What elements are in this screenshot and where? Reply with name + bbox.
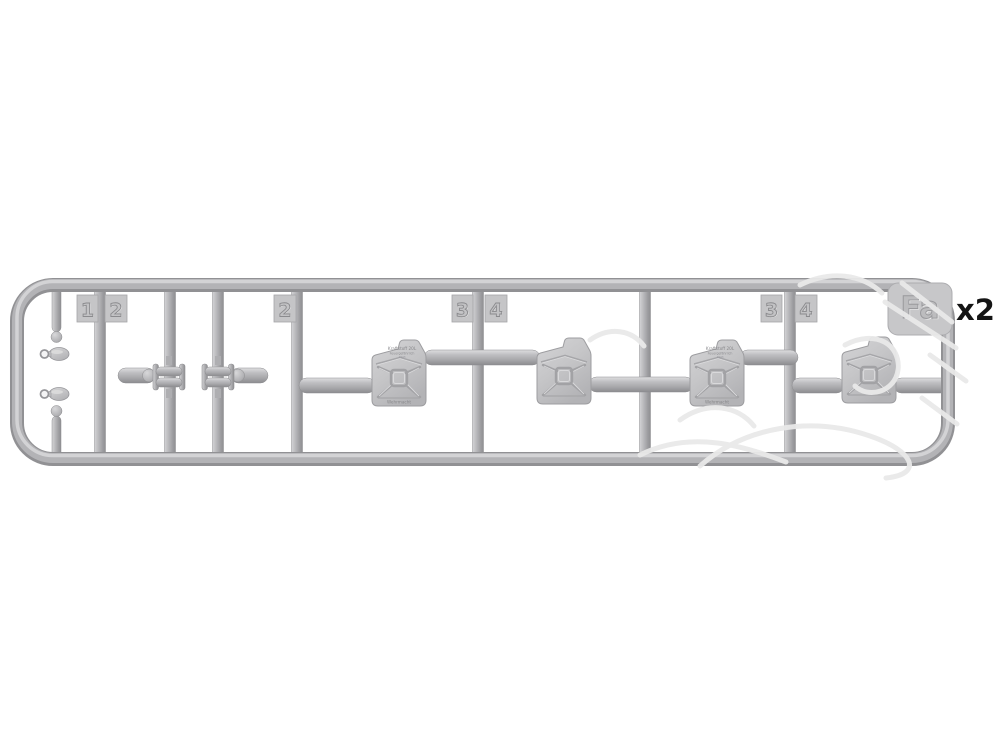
tag-label: 4 xyxy=(489,300,502,322)
can-emboss-line3: 1943 xyxy=(398,355,405,359)
part-tags: 1 1 2 2 2 2 3 3 4 4 3 3 4 xyxy=(77,295,817,322)
tag-label: 2 xyxy=(109,300,122,322)
runner-capsule xyxy=(424,350,540,365)
can-emboss-line1: Kraftstoff 20L xyxy=(388,346,417,351)
runner-capsule xyxy=(894,378,948,393)
can-emboss-line3: 1943 xyxy=(716,355,723,359)
runner-capsule xyxy=(589,377,693,392)
tag-label: 1 xyxy=(81,300,94,322)
tag-label: 3 xyxy=(765,300,778,322)
sprue-ball xyxy=(51,332,62,343)
part-tag: 3 3 xyxy=(761,295,782,322)
part-tag: 4 4 xyxy=(795,295,817,322)
part-tag: 2 2 xyxy=(105,295,127,322)
runner-capsule xyxy=(299,378,375,393)
jerrycan-back xyxy=(537,338,591,404)
runner-stub xyxy=(52,416,61,458)
jerrycan-front: Kraftstoff 20L Feuergefährlich 1943 Wehr… xyxy=(690,340,744,406)
runner-capsule xyxy=(740,350,798,365)
horizontal-runners xyxy=(51,332,948,417)
sprue-ball xyxy=(51,406,62,417)
tag-label: 4 xyxy=(799,300,812,322)
sprue-illustration: 1 1 2 2 2 2 3 3 4 4 3 3 4 xyxy=(0,0,1000,750)
runner-capsule xyxy=(792,378,844,393)
spout-part xyxy=(41,388,70,401)
runner-vertical xyxy=(785,286,796,458)
runner-vertical xyxy=(473,286,484,458)
part-tag: 2 2 xyxy=(274,295,296,322)
quantity-label: x2 xyxy=(956,293,995,327)
runner-stub xyxy=(52,288,61,332)
runner-vertical xyxy=(640,286,651,458)
can-emboss-line4: Wehrmacht xyxy=(387,400,411,405)
can-emboss-line4: Wehrmacht xyxy=(705,400,729,405)
spout-part xyxy=(41,348,70,361)
tag-label: 3 xyxy=(456,300,469,322)
jerrycan-front: Kraftstoff 20L Feuergefährlich 1943 Wehr… xyxy=(372,340,426,406)
part-tag: 1 1 xyxy=(77,295,98,322)
product-photo: 1 1 2 2 2 2 3 3 4 4 3 3 4 xyxy=(0,0,1000,750)
part-tag: 3 3 xyxy=(452,295,473,322)
tag-label: 2 xyxy=(278,300,291,322)
part-tag: 4 4 xyxy=(485,295,507,322)
can-emboss-line1: Kraftstoff 20L xyxy=(706,346,735,351)
